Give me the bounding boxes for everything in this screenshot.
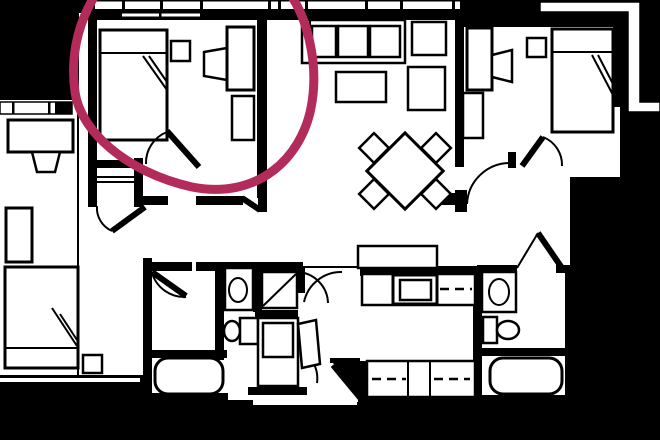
armchair [412,22,446,55]
closet-open-door [298,320,320,368]
toilet-bowl [224,321,240,341]
bed [552,29,613,132]
wardrobe [467,28,492,90]
dresser [6,208,32,262]
side-table [408,67,445,110]
bed [5,267,78,368]
lower-wall-edge [0,378,140,382]
nightstand [83,355,102,373]
nightstand [527,38,546,57]
sofa-cushion [370,26,400,57]
desk [8,120,73,152]
island [367,361,475,397]
toilet-tank [483,317,497,343]
nightstand [171,41,190,61]
closet-open-door [492,50,512,82]
bathtub [155,358,223,394]
toilet-tank [240,318,258,344]
closet-open-door [204,48,227,80]
bed [100,30,167,140]
dining-area [359,133,451,209]
upper-counter [358,246,437,268]
sofa-cushion [338,26,368,57]
desk-chair [32,152,60,172]
wardrobe-low [232,96,254,140]
coffee-table [336,72,386,102]
floorplan-canvas [0,0,660,440]
wardrobe-low [463,93,483,138]
toilet-bowl [497,321,519,339]
wardrobe [227,27,254,90]
bathtub [490,358,562,394]
floorplan-image [0,0,660,440]
